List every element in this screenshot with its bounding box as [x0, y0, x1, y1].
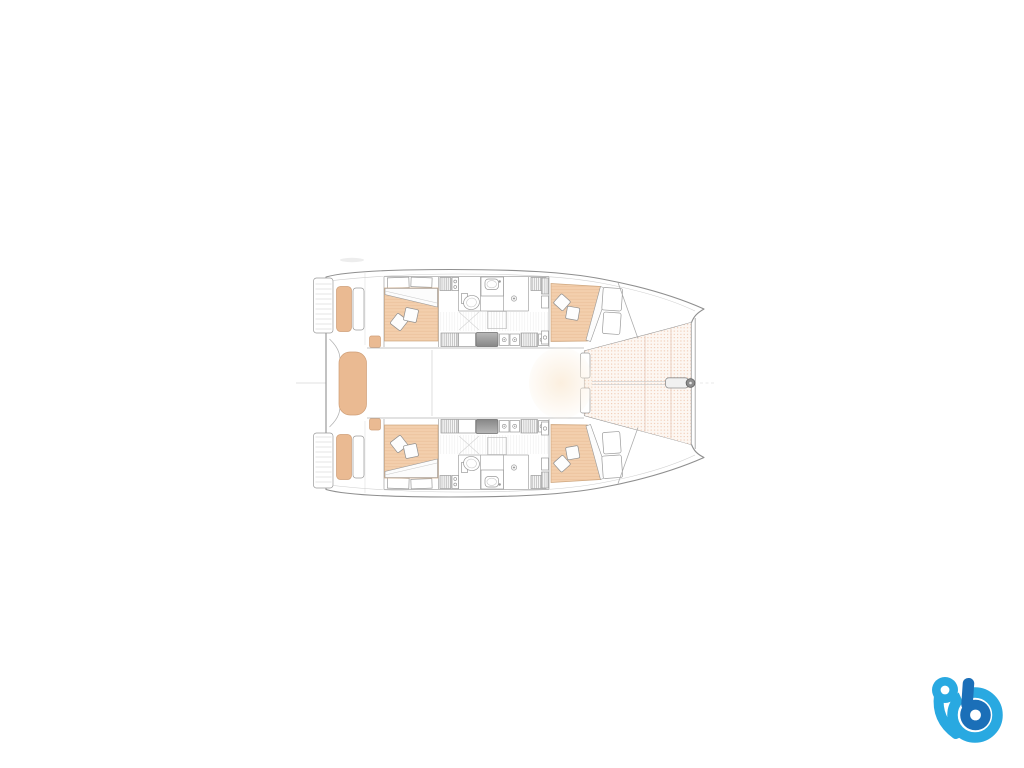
pillow — [565, 306, 579, 320]
louvre-locker — [440, 278, 451, 291]
saloon-glow — [529, 347, 593, 419]
stylized-b-logo-icon — [928, 666, 1004, 751]
pillow — [403, 307, 418, 322]
swim-platform — [314, 278, 334, 333]
brand-logo — [928, 666, 1004, 751]
wardrobe — [602, 287, 623, 311]
head-shelf — [387, 277, 409, 288]
bowsprit-fitting — [666, 378, 689, 388]
galley-locker-row — [441, 333, 549, 347]
cockpit-center-bench — [339, 352, 367, 415]
cockpit-seat-panel — [353, 288, 364, 330]
companionway-step-pad — [370, 336, 381, 348]
catamaran-floor-plan — [290, 245, 730, 510]
page: { "page": { "background_color": "#ffffff… — [0, 0, 1024, 768]
head-shelf — [411, 277, 432, 287]
wardrobe — [602, 312, 621, 335]
floor-plan-svg — [290, 245, 730, 510]
companionway-steps — [488, 312, 507, 329]
cockpit-bench-cushion — [337, 287, 352, 332]
print-smudge — [340, 258, 364, 262]
faucet-icon — [499, 280, 501, 282]
stove-appliance — [476, 333, 498, 347]
